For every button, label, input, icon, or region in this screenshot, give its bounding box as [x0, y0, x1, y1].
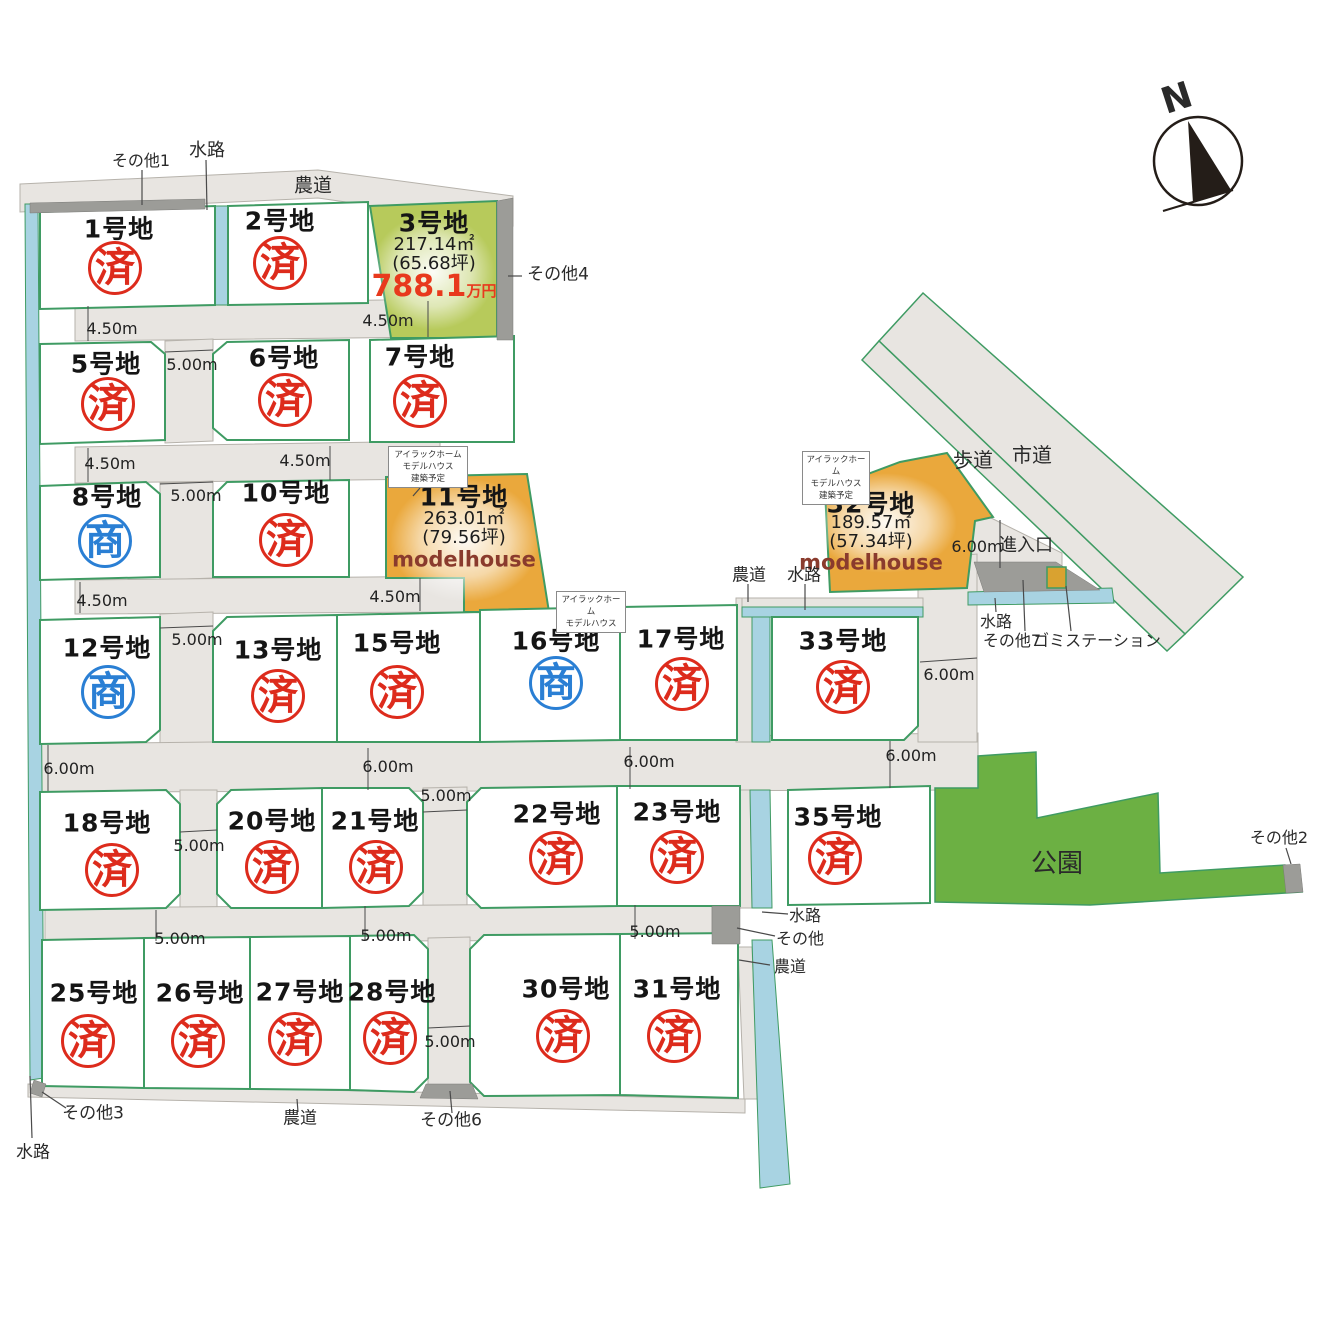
sold-stamp: 済 [536, 1009, 590, 1063]
map-label: 公園 [1031, 851, 1083, 877]
map-label: 歩道 [953, 450, 993, 470]
modelhouse-callout: アイラックホームモデルハウス建築予定 [802, 451, 870, 505]
lot-label: 18号地 [63, 811, 152, 836]
map-label: 農道 [732, 568, 766, 585]
sold-stamp: 済 [85, 843, 139, 897]
featured-lot-info: (57.34坪) [829, 533, 913, 551]
map-label: その他6 [420, 1113, 482, 1130]
sold-stamp: 済 [251, 669, 305, 723]
dimension-label: 5.00m [166, 357, 217, 373]
map-label: ゴミステーション [1033, 633, 1161, 649]
sold-stamp: 済 [88, 241, 142, 295]
featured-lot-info: (79.56坪) [422, 529, 506, 547]
dimension-label: 6.00m [885, 748, 936, 764]
lot-label: 31号地 [633, 977, 722, 1002]
map-label: 水路 [787, 568, 821, 585]
map-label: N [1157, 77, 1197, 121]
dimension-label: 5.00m [173, 838, 224, 854]
dimension-label: 6.00m [43, 761, 94, 777]
map-label: 水路 [789, 908, 821, 924]
callout-line: アイラックホーム [805, 454, 867, 478]
sold-stamp: 済 [655, 657, 709, 711]
lot-price: 788.1万円 [372, 272, 497, 302]
map-label: 水路 [189, 142, 225, 160]
sold-stamp: 済 [259, 513, 313, 567]
site-plan-map: 1号地済2号地済5号地済6号地済7号地済8号地商10号地済12号地商13号地済1… [0, 0, 1320, 1320]
negotiation-stamp: 商 [78, 514, 132, 568]
map-label: その他2 [1250, 830, 1308, 846]
map-label: 水路 [980, 614, 1012, 630]
sold-stamp: 済 [258, 373, 312, 427]
sold-stamp: 済 [363, 1011, 417, 1065]
sold-stamp: 済 [647, 1009, 701, 1063]
lot-label: 23号地 [633, 800, 722, 825]
lot-label: 25号地 [50, 981, 139, 1006]
map-label: 進入口 [999, 537, 1053, 555]
callout-line: モデルハウス [391, 461, 465, 473]
sold-stamp: 済 [61, 1014, 115, 1068]
callout-line: アイラックホーム [391, 449, 465, 461]
dimension-label: 6.00m [362, 759, 413, 775]
dimension-label: 6.00m [623, 754, 674, 770]
sold-stamp: 済 [393, 374, 447, 428]
callout-line: モデルハウス [559, 618, 623, 630]
sold-stamp: 済 [245, 840, 299, 894]
map-label: その他3 [62, 1106, 124, 1123]
dimension-label: 5.00m [360, 928, 411, 944]
callout-line: モデルハウス [805, 478, 867, 490]
map-label: 水路 [16, 1145, 50, 1162]
lot-label: 10号地 [242, 481, 331, 506]
lot-label: 13号地 [234, 638, 323, 663]
map-label: 市道 [1012, 445, 1052, 465]
dimension-label: 5.00m [424, 1034, 475, 1050]
map-label: 農道 [294, 177, 332, 196]
modelhouse-callout: アイラックホームモデルハウス [556, 591, 626, 633]
dimension-label: 4.50m [362, 313, 413, 329]
sold-stamp: 済 [370, 665, 424, 719]
callout-line: 建築予定 [805, 490, 867, 502]
dimension-label: 4.50m [76, 593, 127, 609]
lot-label: 7号地 [385, 345, 455, 370]
lot-label: 5号地 [71, 352, 141, 377]
lot-label: 8号地 [72, 485, 142, 510]
callout-line: 建築予定 [391, 473, 465, 485]
featured-lot-label: 11号地 [420, 485, 509, 510]
lot-label: 6号地 [249, 346, 319, 371]
map-label: その他4 [527, 267, 589, 284]
lot-label: 27号地 [256, 980, 345, 1005]
dimension-label: 5.00m [629, 924, 680, 940]
sold-stamp: 済 [268, 1012, 322, 1066]
lot-label: 12号地 [63, 636, 152, 661]
lot-label: 21号地 [331, 809, 420, 834]
lot-label: 33号地 [799, 629, 888, 654]
sold-stamp: 済 [253, 236, 307, 290]
lot-label: 20号地 [228, 809, 317, 834]
lot-label: 35号地 [794, 805, 883, 830]
sold-stamp: 済 [81, 377, 135, 431]
lot-label: 26号地 [156, 981, 245, 1006]
negotiation-stamp: 商 [529, 656, 583, 710]
sold-stamp: 済 [816, 660, 870, 714]
dimension-label: 4.50m [369, 589, 420, 605]
dimension-label: 4.50m [84, 456, 135, 472]
featured-lot-info: 189.57㎡ [831, 514, 912, 532]
sold-stamp: 済 [529, 831, 583, 885]
callout-line: アイラックホーム [559, 594, 623, 618]
sold-stamp: 済 [349, 840, 403, 894]
sold-stamp: 済 [650, 830, 704, 884]
featured-lot-info: 263.01㎡ [424, 510, 505, 528]
dimension-label: 5.00m [154, 931, 205, 947]
lot-label: 15号地 [353, 631, 442, 656]
map-label: 農道 [283, 1111, 317, 1128]
price-value: 788.1 [372, 269, 467, 304]
negotiation-stamp: 商 [81, 665, 135, 719]
map-text-layer: 1号地済2号地済5号地済6号地済7号地済8号地商10号地済12号地商13号地済1… [0, 0, 1320, 1320]
featured-lot-info: 217.14㎡ [394, 236, 475, 254]
map-label: その他 [776, 931, 824, 947]
featured-lot-label: 3号地 [399, 211, 469, 236]
dimension-label: 6.00m [923, 667, 974, 683]
lot-label: 17号地 [637, 627, 726, 652]
dimension-label: 5.00m [170, 488, 221, 504]
sold-stamp: 済 [808, 831, 862, 885]
modelhouse-callout: アイラックホームモデルハウス建築予定 [388, 446, 468, 488]
lot-label: 28号地 [348, 980, 437, 1005]
featured-lot-info: modelhouse [392, 550, 536, 571]
dimension-label: 4.50m [279, 453, 330, 469]
price-unit: 万円 [466, 282, 496, 300]
lot-label: 2号地 [245, 209, 315, 234]
map-label: その他1 [112, 153, 170, 169]
lot-label: 1号地 [84, 217, 154, 242]
dimension-label: 5.00m [171, 632, 222, 648]
map-label: 農道 [774, 959, 806, 975]
dimension-label: 4.50m [86, 321, 137, 337]
dimension-label: 5.00m [420, 788, 471, 804]
lot-label: 30号地 [522, 977, 611, 1002]
sold-stamp: 済 [171, 1014, 225, 1068]
dimension-label: 6.00m [951, 539, 1002, 555]
lot-label: 22号地 [513, 802, 602, 827]
